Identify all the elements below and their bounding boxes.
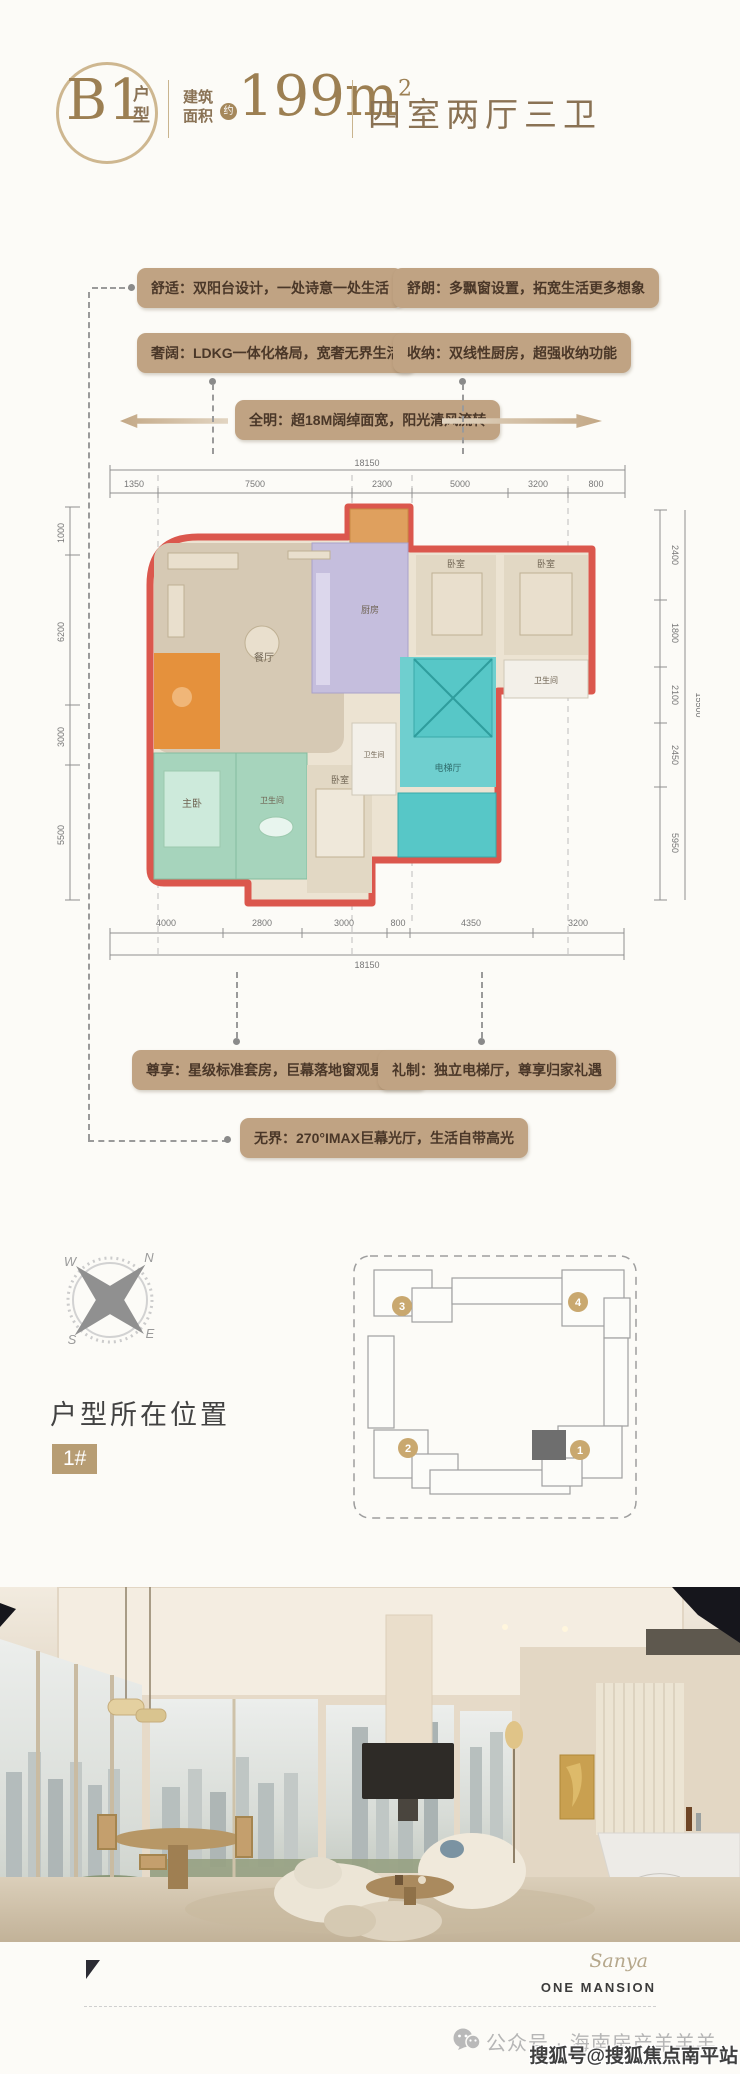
- connector-boundless: [88, 1140, 228, 1142]
- dim: 2300: [372, 479, 392, 489]
- label-bedroom-a: 卧室: [447, 558, 465, 569]
- bed-c: [316, 789, 364, 857]
- dim: 800: [588, 479, 603, 489]
- tag-luxury: 奢阔：LDKG一体化格局，宽奢无界生活: [137, 333, 415, 373]
- compass-w: W: [64, 1254, 78, 1269]
- room-balcony-bottom: [398, 793, 496, 857]
- dim: 4000: [156, 918, 176, 928]
- dim-labels-top: 18150 1350 7500 2300 5000 3200 800: [124, 458, 604, 489]
- rooms-summary: 四室两厅三卫: [368, 88, 602, 136]
- dim-bottom-total: 18150: [354, 960, 379, 970]
- room-bath-b: [352, 723, 396, 795]
- wechat-icon: [452, 2028, 482, 2052]
- bathtub: [259, 817, 293, 837]
- connector-storage: [462, 384, 464, 454]
- building-badge: 1#: [52, 1444, 97, 1474]
- watermark-text: 搜狐号@搜狐焦点南平站: [529, 2041, 738, 2068]
- dim: 2400: [670, 545, 680, 565]
- dim: 5000: [450, 479, 470, 489]
- marker-2: 2: [405, 1443, 411, 1455]
- compass-e: E: [146, 1326, 155, 1341]
- connector-dot-ritual: [478, 1038, 485, 1045]
- dim-top-total: 18150: [354, 458, 379, 468]
- floorplan-svg: 18150 1350 7500 2300 5000 3200 800 1000 …: [40, 455, 700, 980]
- location-heading: 户型所在位置: [50, 1393, 230, 1432]
- dim: 7500: [245, 479, 265, 489]
- dim: 2100: [670, 685, 680, 705]
- poster-canvas: B1 户型 建筑 面积 约 199m2 四室两厅三卫 舒适：双阳台设计，一处诗意…: [0, 0, 740, 2074]
- label-bath-b: 卫生间: [364, 750, 385, 759]
- area-label-line2: 面积: [183, 107, 213, 126]
- tag-storage: 收纳：双线性厨房，超强收纳功能: [393, 333, 631, 373]
- connector-dot-suite: [233, 1038, 240, 1045]
- label-bedroom-b: 卧室: [537, 558, 555, 569]
- label-kitchen: 厨房: [361, 604, 379, 615]
- dim: 1350: [124, 479, 144, 489]
- connector-ritual: [481, 972, 483, 1038]
- dim: 2450: [670, 745, 680, 765]
- dim: 3200: [568, 918, 588, 928]
- brand-script: Sanya: [589, 1950, 648, 1972]
- label-bedroom-c: 卧室: [331, 774, 349, 785]
- brand-name: ONE MANSION: [541, 1980, 656, 1995]
- compass-icon: N W S E: [50, 1238, 170, 1358]
- tag-bright: 舒朗：多飘窗设置，拓宽生活更多想象: [393, 268, 659, 308]
- dim: 1800: [670, 623, 680, 643]
- area-label: 建筑 面积: [183, 88, 213, 126]
- highlighted-unit-block: [532, 1430, 566, 1460]
- tag-comfort: 舒适：双阳台设计，一处诗意一处生活: [137, 268, 403, 308]
- siteplan-svg: 3 4 2 1: [262, 1218, 702, 1536]
- tv-screen: [362, 1743, 454, 1799]
- label-bath-c: 卫生间: [260, 795, 284, 805]
- dim: 1000: [56, 523, 66, 543]
- connector-suite: [236, 972, 238, 1038]
- header-divider-1: [168, 80, 169, 138]
- marker-3: 3: [399, 1301, 405, 1313]
- dim-lines-left: [65, 507, 80, 900]
- footer-divider: [84, 2006, 656, 2007]
- tag-boundless: 无界：270°IMAX巨幕光厅，生活自带高光: [240, 1118, 528, 1158]
- marker-1: 1: [577, 1445, 583, 1457]
- approx-badge: 约: [220, 103, 237, 120]
- interior-photo: [0, 1587, 740, 1942]
- dim: 3200: [528, 479, 548, 489]
- lounge-chair: [172, 687, 192, 707]
- connector-dot-boundless: [224, 1136, 231, 1143]
- label-master: 主卧: [182, 797, 202, 810]
- dim: 2800: [252, 918, 272, 928]
- kitchen-counter: [316, 573, 330, 685]
- compass-s: S: [68, 1332, 77, 1347]
- connector-dot-comfort: [128, 284, 135, 291]
- dim-labels-left: 1000 6200 3000 5500: [56, 523, 66, 845]
- dim-right-total: 15500: [694, 692, 700, 717]
- dim: 4350: [461, 918, 481, 928]
- label-elevator-hall: 电梯厅: [434, 762, 461, 773]
- dim: 3000: [334, 918, 354, 928]
- label-dining: 餐厅: [254, 651, 274, 664]
- dim: 800: [390, 918, 405, 928]
- dim-lines-bottom: [110, 928, 624, 960]
- dim: 5950: [670, 833, 680, 853]
- flag-icon: [86, 1960, 100, 1979]
- compass-n: N: [144, 1250, 154, 1265]
- dim: 5500: [56, 825, 66, 845]
- header-divider-2: [352, 80, 353, 138]
- tag-ritual: 礼制：独立电梯厅，尊享归家礼遇: [378, 1050, 616, 1090]
- label-bath-a: 卫生间: [534, 675, 558, 685]
- dim: 6200: [56, 622, 66, 642]
- unit-suffix: 户型: [133, 84, 153, 126]
- marker-4: 4: [575, 1297, 582, 1309]
- dim-labels-bottom: 4000 2800 3000 800 4350 3200 18150: [156, 918, 588, 970]
- connector-luxury: [212, 384, 214, 454]
- dim: 3000: [56, 727, 66, 747]
- area-label-line1: 建筑: [183, 88, 213, 107]
